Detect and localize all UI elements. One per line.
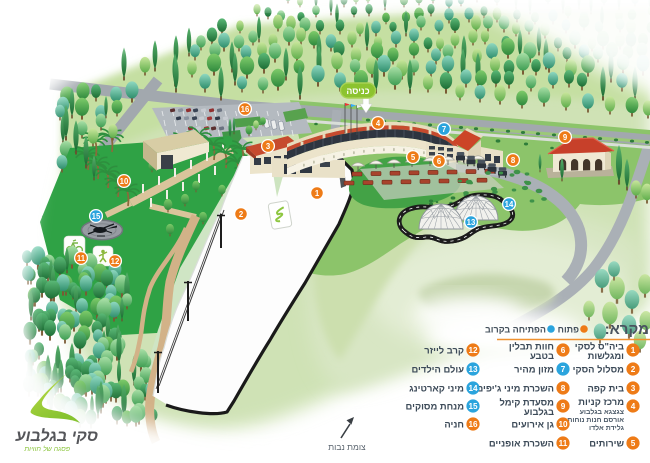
svg-text:1: 1: [315, 189, 320, 198]
svg-text:13: 13: [467, 218, 476, 227]
svg-text:4: 4: [631, 402, 636, 411]
svg-text:9: 9: [563, 133, 568, 142]
svg-text:7: 7: [442, 125, 446, 134]
svg-text:8: 8: [561, 384, 566, 393]
svg-text:13: 13: [468, 365, 478, 374]
svg-text:קרב לייזר: קרב לייזר: [424, 345, 464, 356]
svg-text:מזון מהיר: מזון מהיר: [514, 364, 554, 375]
svg-text:16: 16: [241, 105, 250, 114]
svg-text:חניה: חניה: [444, 419, 464, 430]
svg-text:גן אירועים: גן אירועים: [511, 419, 554, 430]
svg-text:6: 6: [437, 157, 442, 166]
svg-text:1: 1: [631, 346, 636, 355]
svg-text:16: 16: [468, 420, 478, 429]
svg-text:מיני קארטינג: מיני קארטינג: [409, 383, 464, 394]
svg-text:7: 7: [561, 365, 566, 374]
svg-text:8: 8: [511, 156, 516, 165]
svg-text:מנחת מסוקים: מנחת מסוקים: [406, 401, 465, 412]
svg-text:5: 5: [411, 153, 416, 162]
svg-text:14: 14: [468, 384, 478, 393]
svg-text:צגצגא בגלבוע: צגצגא בגלבוע: [580, 408, 624, 416]
svg-text:ומגלשות: ומגלשות: [588, 350, 624, 361]
svg-text:2: 2: [239, 210, 244, 219]
svg-text:בטבע: בטבע: [530, 350, 554, 361]
svg-text:10: 10: [558, 420, 568, 429]
svg-text:בגלבוע: בגלבוע: [524, 406, 554, 417]
svg-text:11: 11: [559, 439, 568, 448]
svg-text:14: 14: [505, 200, 514, 209]
svg-text:3: 3: [631, 384, 636, 393]
svg-text:12: 12: [111, 257, 120, 266]
svg-text:אורסם חנות נוחות: אורסם חנות נוחות: [567, 417, 624, 424]
svg-text:צומת נבות: צומת נבות: [328, 442, 366, 452]
svg-text:מסלול הסקי: מסלול הסקי: [573, 364, 625, 375]
svg-text:פסגה של חוויות: פסגה של חוויות: [23, 445, 70, 453]
svg-text:בית קפה: בית קפה: [587, 383, 624, 394]
svg-text:סקי בגלבוע: סקי בגלבוע: [15, 427, 98, 445]
svg-text:פתוח: פתוח: [558, 325, 579, 335]
svg-text:4: 4: [376, 119, 381, 128]
svg-text:5: 5: [631, 439, 636, 448]
svg-text:6: 6: [561, 346, 566, 355]
svg-text:12: 12: [468, 346, 478, 355]
svg-text:השכרת אופניים: השכרת אופניים: [489, 438, 554, 449]
svg-text:השכרת מיני ג'יפים: השכרת מיני ג'יפים: [476, 383, 554, 394]
svg-text:9: 9: [561, 402, 566, 411]
svg-text:15: 15: [468, 402, 478, 411]
svg-text:כניסה: כניסה: [346, 86, 369, 96]
svg-text:הפתיחה בקרוב: הפתיחה בקרוב: [485, 325, 546, 335]
svg-text:מקרא:: מקרא:: [605, 321, 649, 338]
svg-text:15: 15: [92, 212, 101, 221]
svg-text:2: 2: [631, 365, 636, 374]
svg-text:11: 11: [77, 254, 86, 263]
svg-text:גלידת אלדו: גלידת אלדו: [589, 424, 625, 432]
svg-text:עולם הילדים: עולם הילדים: [411, 364, 464, 375]
svg-text:מרכז קניות: מרכז קניות: [578, 396, 624, 407]
svg-text:10: 10: [120, 177, 129, 186]
svg-text:שירותים: שירותים: [589, 438, 624, 449]
svg-text:3: 3: [266, 142, 271, 151]
